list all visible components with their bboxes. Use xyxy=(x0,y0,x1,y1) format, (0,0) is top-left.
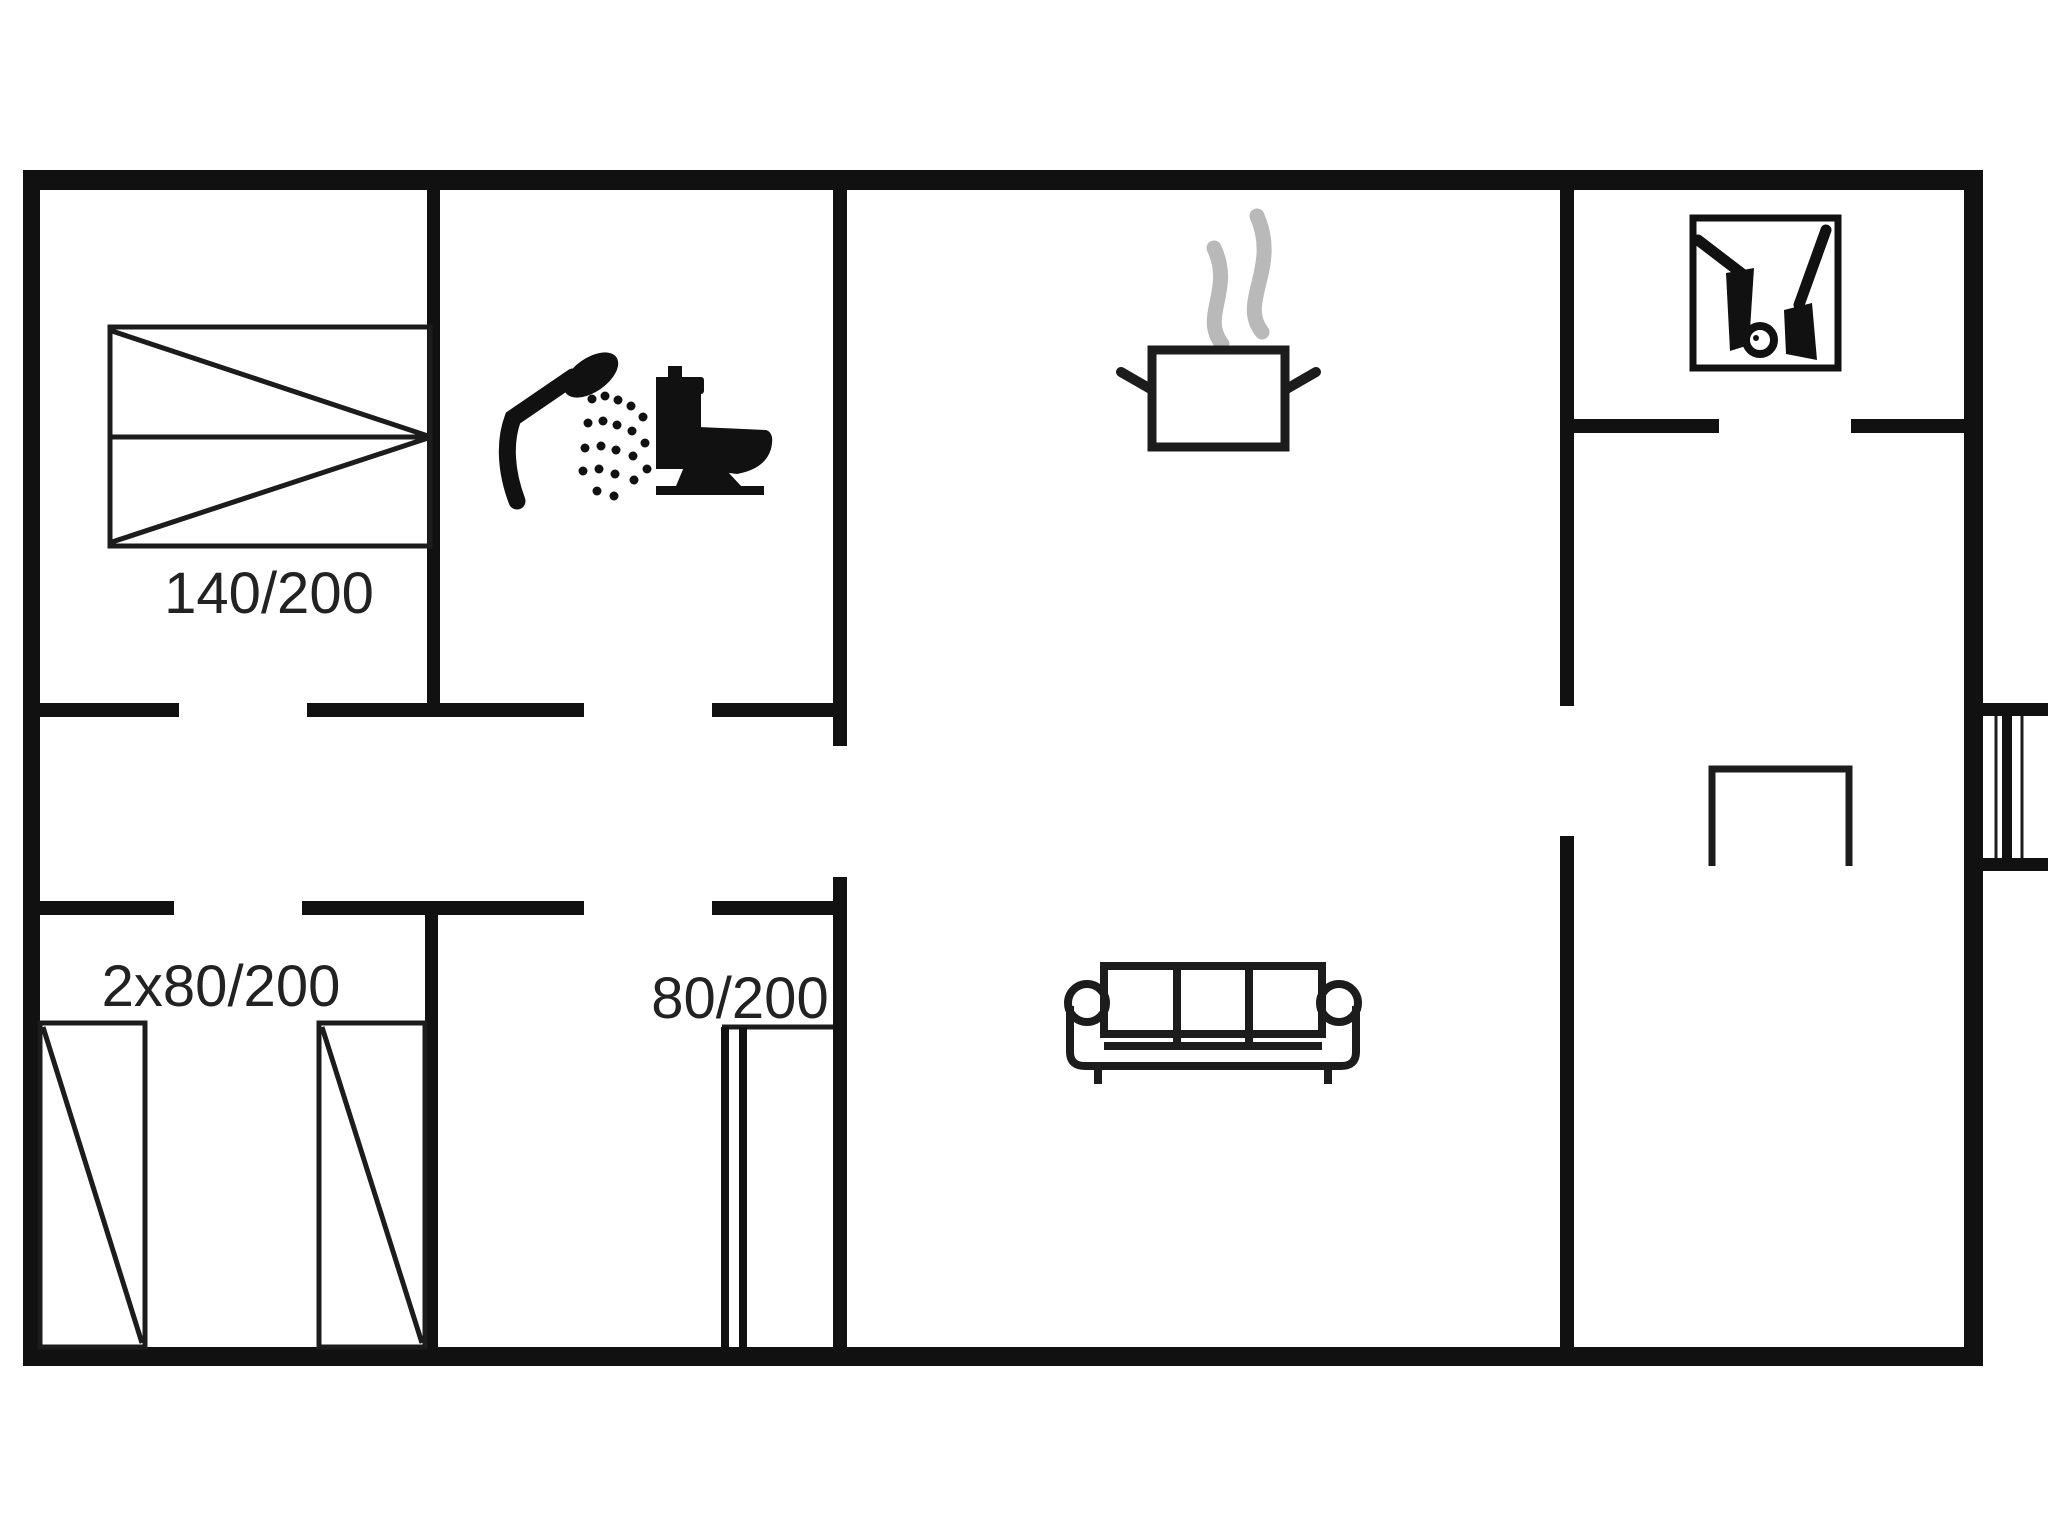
wall-bottom xyxy=(23,1347,1983,1366)
wall-segment xyxy=(712,703,833,717)
cooking-pot-icon xyxy=(1121,350,1316,447)
shower-icon xyxy=(507,343,651,501)
wall-segment xyxy=(307,703,584,717)
floor-plan: 140/200 xyxy=(0,0,2048,1536)
single-bed-icon xyxy=(40,1023,145,1347)
wall-segment xyxy=(1560,419,1719,433)
table-icon xyxy=(1712,769,1849,866)
toilet-icon xyxy=(656,366,772,495)
wall-segment xyxy=(38,901,174,915)
single-bed-icon xyxy=(721,1027,833,1350)
fireplace-tools-icon xyxy=(1693,218,1838,368)
twin-beds-label: 2x80/200 xyxy=(102,954,341,1019)
steam-icon xyxy=(1214,216,1264,344)
single-bed-icon xyxy=(319,1023,425,1347)
single-bed-label: 80/200 xyxy=(651,966,828,1031)
wall-segment xyxy=(302,901,584,915)
wall-segment xyxy=(712,901,833,915)
wall-segment xyxy=(1560,836,1574,1366)
wall-segment xyxy=(1560,188,1574,706)
chimney-icon xyxy=(1983,703,2048,871)
sofa-icon xyxy=(1068,966,1358,1084)
wall-right xyxy=(1964,170,1983,1366)
wall-top xyxy=(23,170,1983,190)
double-bed-label: 140/200 xyxy=(164,561,374,626)
wall-segment xyxy=(833,877,847,1366)
shower-spray xyxy=(579,392,652,501)
wall-segment xyxy=(833,188,847,746)
floor-plan-canvas: 140/200 xyxy=(0,0,2048,1536)
wall-segment xyxy=(38,703,179,717)
wall-left xyxy=(23,170,40,1366)
wall-segment xyxy=(1851,419,1982,433)
double-bed-icon xyxy=(110,327,430,546)
